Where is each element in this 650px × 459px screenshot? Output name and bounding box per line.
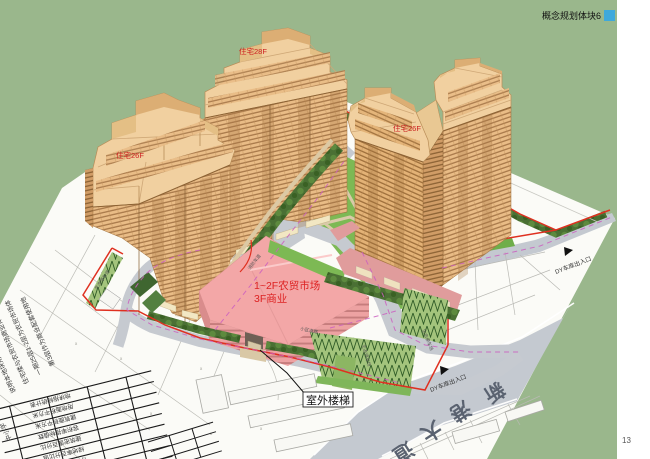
svg-text:概念规划体块6: 概念规划体块6 — [542, 10, 601, 21]
svg-text:住宅26F: 住宅26F — [116, 150, 144, 160]
svg-text:1~2F农贸市场: 1~2F农贸市场 — [254, 279, 320, 292]
svg-text:住宅28F: 住宅28F — [239, 46, 267, 56]
svg-text:3F商业: 3F商业 — [254, 292, 287, 305]
svg-text:13: 13 — [622, 436, 631, 445]
svg-text:住宅26F: 住宅26F — [393, 123, 421, 133]
svg-text:室外楼梯: 室外楼梯 — [306, 393, 350, 407]
